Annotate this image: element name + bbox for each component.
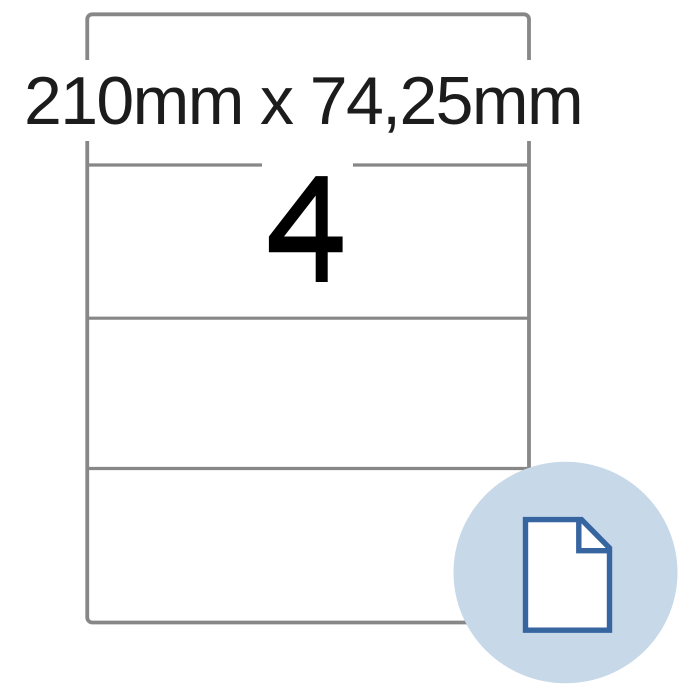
- svg-text:210mm x 74,25mm: 210mm x 74,25mm: [24, 63, 582, 139]
